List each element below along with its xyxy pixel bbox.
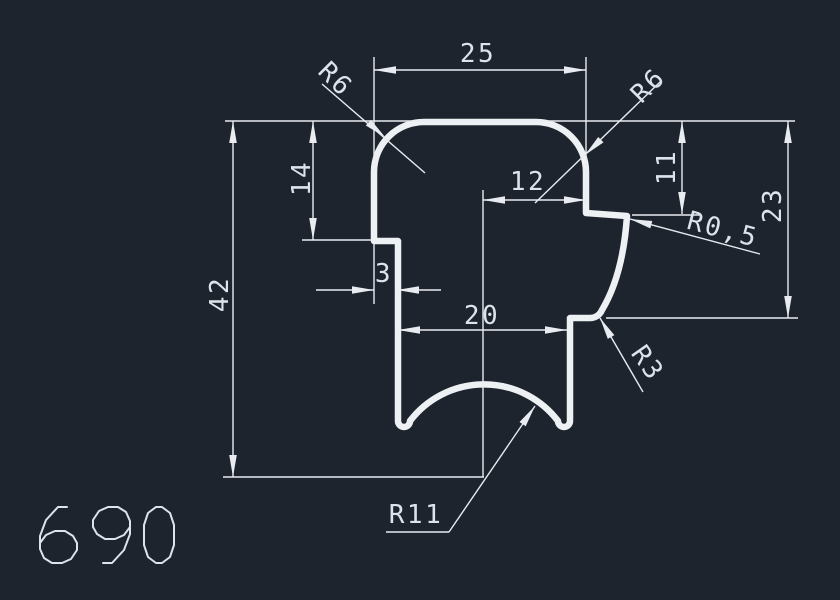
dimension-value[interactable]: 25 xyxy=(460,39,496,69)
dimension-value[interactable]: 42 xyxy=(205,276,235,312)
dimension-value[interactable]: 20 xyxy=(464,301,500,331)
dimension-value[interactable]: 12 xyxy=(510,167,546,197)
dimension-value[interactable]: 3 xyxy=(375,259,393,289)
dimension-value[interactable]: 14 xyxy=(287,160,317,196)
dimension-value[interactable]: 23 xyxy=(758,187,788,223)
dimension-value[interactable]: 11 xyxy=(652,149,682,185)
cad-canvas: 25 R6 R6 14 42 12 xyxy=(0,0,840,600)
dimension-value[interactable]: R11 xyxy=(389,500,443,530)
